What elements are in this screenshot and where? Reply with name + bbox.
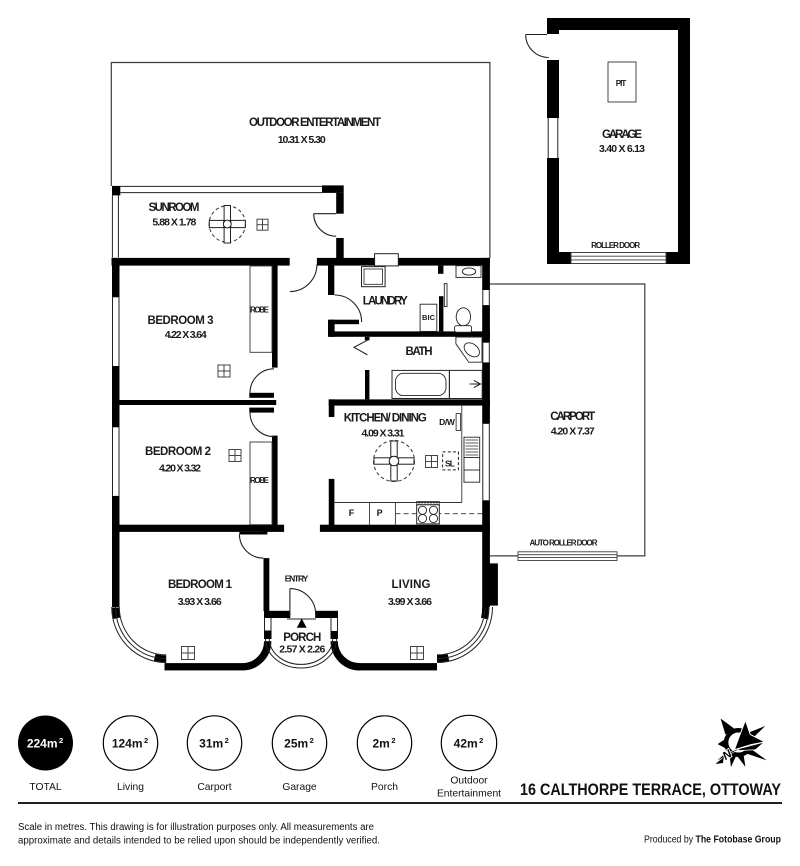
svg-text:BEDROOM 3: BEDROOM 3 bbox=[148, 315, 214, 327]
svg-text:BIC: BIC bbox=[422, 313, 436, 322]
svg-text:Entertainment: Entertainment bbox=[437, 789, 501, 800]
svg-text:ROBE: ROBE bbox=[250, 476, 270, 485]
svg-text:BATH: BATH bbox=[406, 346, 433, 358]
svg-text:4.22 X 3.64: 4.22 X 3.64 bbox=[165, 329, 207, 341]
svg-text:ROLLER DOOR: ROLLER DOOR bbox=[591, 241, 640, 250]
svg-text:16 CALTHORPE TERRACE, OTTOWAY: 16 CALTHORPE TERRACE, OTTOWAY bbox=[520, 780, 782, 799]
svg-text:ENTRY: ENTRY bbox=[285, 574, 309, 584]
svg-text:2.57 X 2.26: 2.57 X 2.26 bbox=[279, 644, 325, 656]
svg-text:3.99 X 3.66: 3.99 X 3.66 bbox=[388, 596, 432, 608]
svg-text:Living: Living bbox=[117, 782, 144, 793]
svg-text:P: P bbox=[377, 508, 383, 518]
svg-text:Porch: Porch bbox=[371, 782, 398, 793]
svg-text:Outdoor: Outdoor bbox=[450, 776, 488, 787]
svg-text:Carport: Carport bbox=[197, 782, 231, 793]
svg-text:SL: SL bbox=[445, 459, 455, 469]
svg-text:D/W: D/W bbox=[439, 417, 456, 427]
svg-text:CARPORT: CARPORT bbox=[550, 411, 595, 423]
svg-text:Scale in metres. This drawing: Scale in metres. This drawing is for ill… bbox=[18, 822, 374, 833]
svg-text:BEDROOM 1: BEDROOM 1 bbox=[168, 579, 233, 591]
svg-text:BEDROOM 2: BEDROOM 2 bbox=[145, 446, 211, 458]
svg-text:PIT: PIT bbox=[616, 79, 627, 88]
svg-text:3.93 X 3.66: 3.93 X 3.66 bbox=[178, 596, 222, 608]
svg-text:KITCHEN/ DINING: KITCHEN/ DINING bbox=[344, 413, 427, 425]
svg-text:LIVING: LIVING bbox=[392, 579, 431, 591]
svg-text:TOTAL: TOTAL bbox=[29, 782, 62, 793]
svg-text:OUTDOOR ENTERTAINMENT: OUTDOOR ENTERTAINMENT bbox=[249, 117, 381, 129]
svg-text:ROBE: ROBE bbox=[250, 306, 270, 315]
svg-text:LAUNDRY: LAUNDRY bbox=[363, 296, 408, 308]
svg-text:5.88 X 1.78: 5.88 X 1.78 bbox=[152, 217, 196, 229]
svg-text:4.20 X 3.32: 4.20 X 3.32 bbox=[159, 463, 201, 475]
svg-text:4.09 X 3.31: 4.09 X 3.31 bbox=[362, 428, 405, 440]
svg-text:3.40 X 6.13: 3.40 X 6.13 bbox=[599, 143, 645, 155]
svg-text:Produced by The Fotobase Group: Produced by The Fotobase Group bbox=[644, 835, 781, 846]
svg-text:F: F bbox=[349, 508, 355, 518]
svg-text:Garage: Garage bbox=[282, 782, 317, 793]
svg-text:AUTO ROLLER DOOR: AUTO ROLLER DOOR bbox=[530, 539, 598, 548]
svg-text:approximate and details intend: approximate and details intended to be r… bbox=[18, 836, 380, 847]
svg-text:PORCH: PORCH bbox=[283, 632, 321, 644]
svg-text:10.31 X 5.30: 10.31 X 5.30 bbox=[278, 134, 326, 146]
svg-text:4.20 X 7.37: 4.20 X 7.37 bbox=[551, 426, 595, 438]
svg-text:GARAGE: GARAGE bbox=[602, 129, 642, 141]
svg-text:SUNROOM: SUNROOM bbox=[149, 202, 200, 214]
